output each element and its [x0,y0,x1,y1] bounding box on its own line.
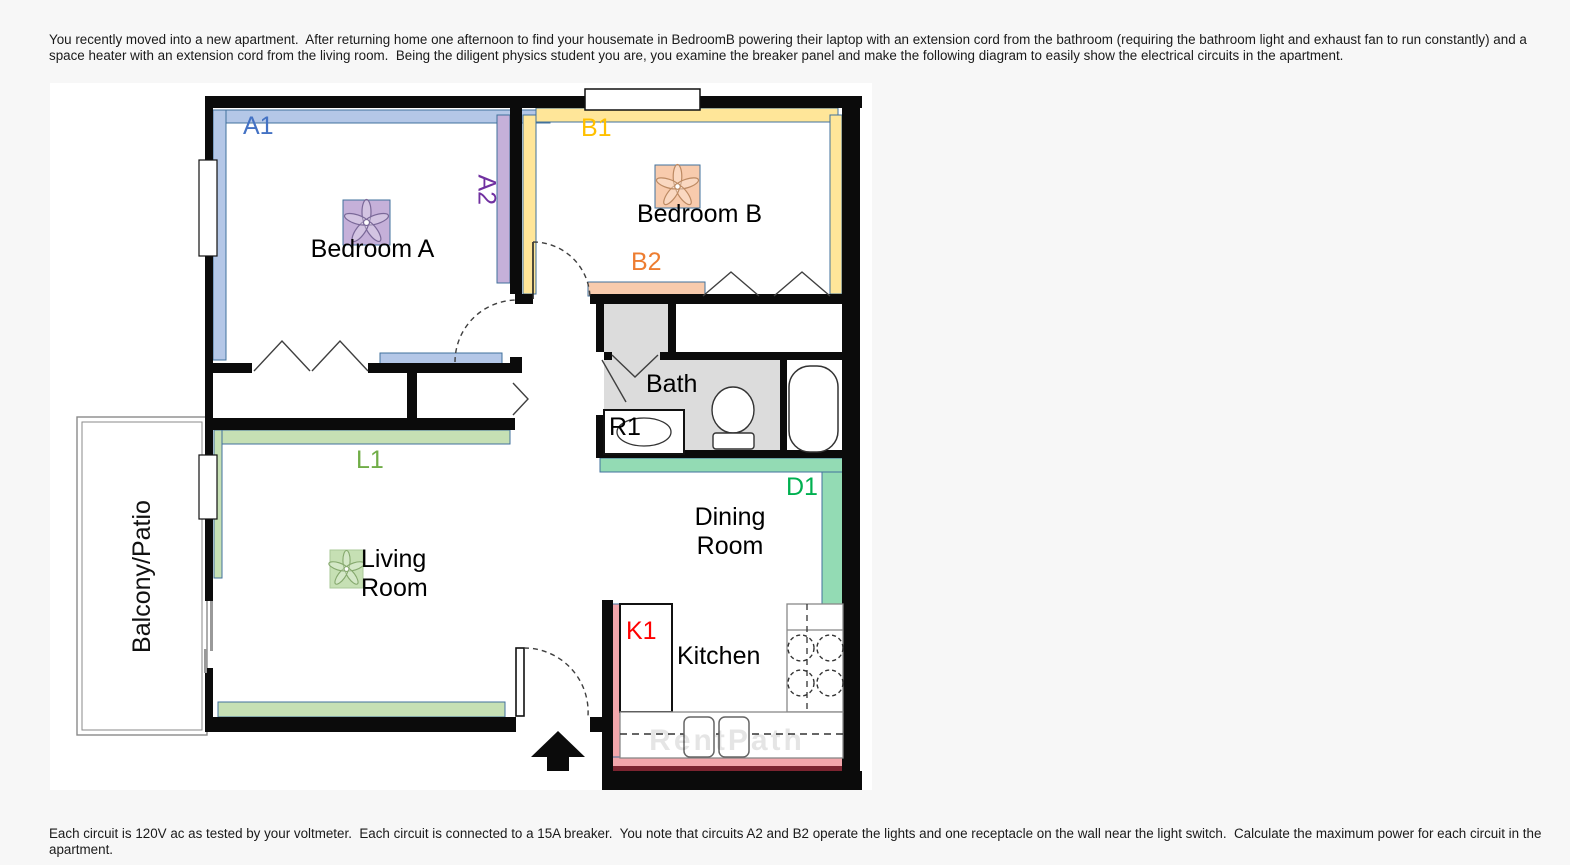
watermark-text: RentPath [608,727,846,754]
label-circuit-d1: D1 [786,474,818,501]
label-circuit-l1: L1 [356,447,384,474]
label-room-kitchen: Kitchen [677,643,760,670]
label-room-balcony: Balcony/Patio [77,417,207,735]
bedroom-a-window [199,160,217,256]
label-room-living: LivingRoom [361,545,428,603]
label-circuit-r1: R1 [609,414,641,441]
problem-question-text: Each circuit is 120V ac as tested by you… [49,826,1547,858]
circuit-l1-strip [218,430,510,444]
label-circuit-b2: B2 [631,249,662,276]
balcony-slider [210,601,213,651]
bedroom-a-closet-door [312,341,368,371]
circuit-d1-strip [600,458,843,472]
label-circuit-b1: B1 [581,115,612,142]
balcony-label-text: Balcony/Patio [128,500,157,653]
label-room-dining: DiningRoom [645,503,815,561]
label-circuit-k1: K1 [626,618,657,645]
floorplan-figure: A1 A2 B1 B2 L1 D1 K1 R1 Bedroom A Bedroo… [50,83,872,790]
entry-door-leaf [516,648,524,716]
bedroom-a-closet-door [254,341,310,371]
entry-arrow [531,731,585,771]
entry-door-arc [524,648,588,716]
circuit-b2-strip [588,282,705,296]
bathtub [789,366,838,452]
label-room-bedroom-a: Bedroom A [280,236,465,263]
label-room-bedroom-b: Bedroom B [602,201,797,228]
label-dining-line1: Dining [695,503,766,531]
bedroom-b-closet-door [774,272,830,296]
label-room-bath: Bath [646,371,697,398]
label-living-line1: Living [361,545,426,573]
label-circuit-a1: A1 [243,113,274,140]
bedroom-b-closet-door [703,272,759,296]
living-room-fan [328,550,365,588]
label-dining-line2: Room [697,532,764,560]
toilet [712,387,754,433]
label-circuit-a2: A2 [473,175,500,215]
page: { "problem": { "intro": "You recently mo… [0,0,1570,865]
hall-door-chevron [513,383,528,415]
problem-intro-text: You recently moved into a new apartment.… [49,32,1547,64]
circuit-l1-strip [218,702,505,717]
bedroom-b-window [585,89,700,110]
circuit-b1-strip [523,115,536,294]
circuit-d1-strip [822,472,843,608]
bedroom-b-door-arc [533,242,590,299]
label-living-line2: Room [361,574,428,602]
circuit-b1-strip [830,115,842,294]
kitchen-baseboard-line [612,766,843,771]
